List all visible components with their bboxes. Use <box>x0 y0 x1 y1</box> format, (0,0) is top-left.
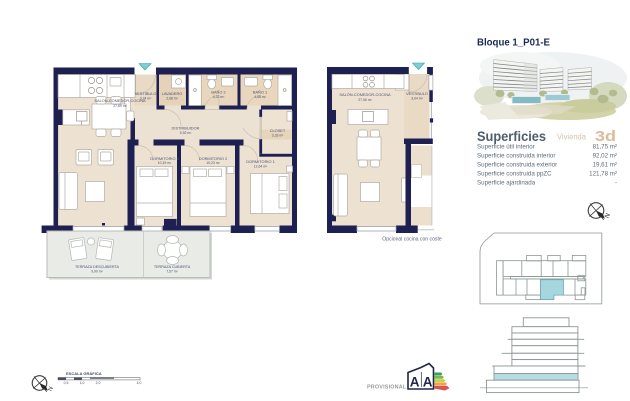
svg-text:ESCALA GRÁFICA: ESCALA GRÁFICA <box>66 371 102 376</box>
svg-text:5,92 m²: 5,92 m² <box>180 131 192 135</box>
svg-text:A: A <box>423 375 433 390</box>
svg-text:Bloque 1_P01-E: Bloque 1_P01-E <box>477 38 550 49</box>
svg-text:VESTIBULO: VESTIBULO <box>406 91 428 96</box>
svg-text:92,02 m²: 92,02 m² <box>593 153 617 160</box>
svg-text:DORMITORIO 1: DORMITORIO 1 <box>246 159 274 164</box>
svg-text:Vivienda: Vivienda <box>557 133 587 142</box>
svg-text:3d: 3d <box>595 128 616 145</box>
svg-text:27,06 m²: 27,06 m² <box>358 98 372 102</box>
svg-text:SALÓN-COMEDOR-COCINA: SALÓN-COMEDOR-COCINA <box>339 92 391 97</box>
svg-text:DORMITORIO 2: DORMITORIO 2 <box>199 156 227 161</box>
svg-text:4,0: 4,0 <box>137 381 142 385</box>
svg-text:SALON-COMEDOR-COCINA: SALON-COMEDOR-COCINA <box>94 98 146 103</box>
svg-text:PROVISIONAL: PROVISIONAL <box>367 385 407 391</box>
svg-text:-: - <box>615 180 617 187</box>
svg-text:4,32 m²: 4,32 m² <box>213 95 225 99</box>
svg-text:TERRAZA DESCUBIERTA: TERRAZA DESCUBIERTA <box>75 265 119 269</box>
svg-text:Superficie construida interior: Superficie construida interior <box>477 153 555 160</box>
svg-text:4,68 m²: 4,68 m² <box>254 95 266 99</box>
svg-text:DORMITORIO 3: DORMITORIO 3 <box>150 156 178 161</box>
svg-text:Superficie útil interior: Superficie útil interior <box>477 144 535 151</box>
svg-text:LAVADERO: LAVADERO <box>162 91 183 96</box>
svg-text:3,33 m²: 3,33 m² <box>272 134 284 138</box>
svg-text:10,19 m²: 10,19 m² <box>158 161 172 165</box>
svg-text:3,04 m²: 3,04 m² <box>411 96 423 100</box>
svg-text:9,90 m²: 9,90 m² <box>91 269 103 273</box>
svg-text:TERRAZA CUBIERTA: TERRAZA CUBIERTA <box>154 265 191 269</box>
svg-text:Superficies: Superficies <box>477 128 546 144</box>
svg-text:7,57 m²: 7,57 m² <box>166 269 178 273</box>
svg-text:Superficie ajardinada: Superficie ajardinada <box>477 180 536 187</box>
svg-text:BAÑO 2: BAÑO 2 <box>211 90 225 95</box>
svg-text:10,23 m²: 10,23 m² <box>206 161 220 165</box>
svg-text:19,61 m²: 19,61 m² <box>593 162 617 169</box>
svg-text:VESTIBULO: VESTIBULO <box>135 91 157 96</box>
svg-text:121,78 m²: 121,78 m² <box>589 171 617 178</box>
svg-text:2,0: 2,0 <box>96 381 101 385</box>
svg-text:81,75 m²: 81,75 m² <box>593 144 617 151</box>
svg-text:2,68 m²: 2,68 m² <box>166 96 178 100</box>
svg-text:3,24 m²: 3,24 m² <box>140 96 152 100</box>
svg-text:Superficie construida exterior: Superficie construida exterior <box>477 162 557 169</box>
svg-text:Opcional cocina con coste: Opcional cocina con coste <box>382 237 442 243</box>
svg-text:CLOSET: CLOSET <box>270 128 286 133</box>
svg-text:BAÑO 1: BAÑO 1 <box>253 90 267 95</box>
svg-text:12,64 m²: 12,64 m² <box>254 165 268 169</box>
svg-text:DISTRIBUIDOR: DISTRIBUIDOR <box>172 126 200 131</box>
svg-text:A: A <box>410 375 420 390</box>
svg-text:Superficie construida ppZC: Superficie construida ppZC <box>477 171 552 178</box>
svg-text:1,0: 1,0 <box>80 381 85 385</box>
svg-text:0,5: 0,5 <box>64 381 69 385</box>
svg-text:27,89 m²: 27,89 m² <box>113 104 127 108</box>
